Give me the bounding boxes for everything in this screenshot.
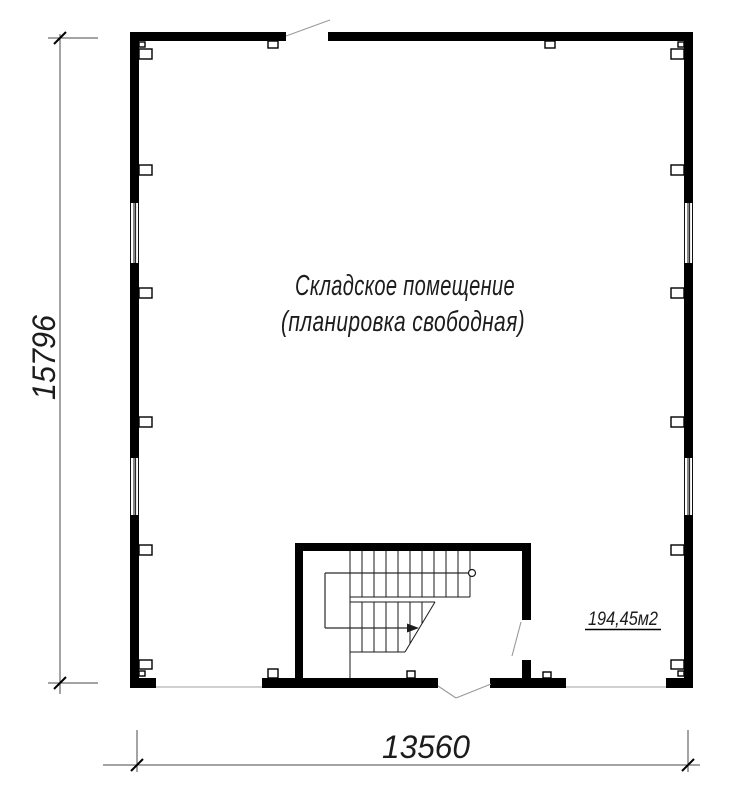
staircase [325,551,476,678]
wall-column-marks [139,41,684,678]
stairwell-wall-top [295,543,531,551]
staircase-lower-flight [350,602,435,652]
staircase-upper-flight [350,551,470,597]
floor-plan-canvas: 15796 13560 Складское помещение (планиро… [0,0,743,800]
windows [131,203,693,515]
area-label: 194,45м2 [588,609,658,630]
door-leaf-bottom-left [438,686,456,698]
wall-bottom-seg2 [262,678,438,688]
door-leaf-bottom-right [456,684,491,698]
area-label-group: 194,45м2 [585,609,661,630]
door-leaf-stairwell [512,622,521,656]
wall-left-seg1 [130,32,139,203]
room-name-line1: Складское помещение [295,270,515,302]
floor-plan-drawing: 15796 13560 Складское помещение (планиро… [0,0,743,800]
stair-start-circle [469,570,476,577]
room-name-line2: (планировка свободная) [281,306,525,338]
wall-left-seg2 [130,263,139,458]
wall-right-seg2 [684,263,693,458]
wall-bottom-seg3 [490,678,566,688]
wall-right-seg3 [684,515,693,688]
door-leaf-top-entrance [286,20,330,36]
window-left-upper [131,203,139,263]
dimension-lines: 15796 13560 [26,32,700,772]
stairwell-wall-left [295,543,303,678]
vertical-dimension: 15796 [26,32,98,694]
wall-left-seg3 [130,515,139,688]
wall-right-seg1 [684,32,693,203]
staircase-direction-line [325,570,476,633]
wall-top-right-segment [328,32,693,41]
horizontal-dimension: 13560 [103,729,700,772]
vertical-dimension-label: 15796 [26,315,62,400]
door-swings [156,20,666,698]
stairwell-wall-right-upper [522,551,531,620]
stairwell-wall-right-stub [522,660,531,678]
window-right-lower [685,458,693,515]
horizontal-dimension-label: 13560 [382,729,470,765]
window-left-lower [131,458,139,515]
window-right-upper [685,203,693,263]
wall-top-left-segment [130,32,286,41]
stairwell-walls [295,543,531,678]
exterior-walls [130,32,693,688]
